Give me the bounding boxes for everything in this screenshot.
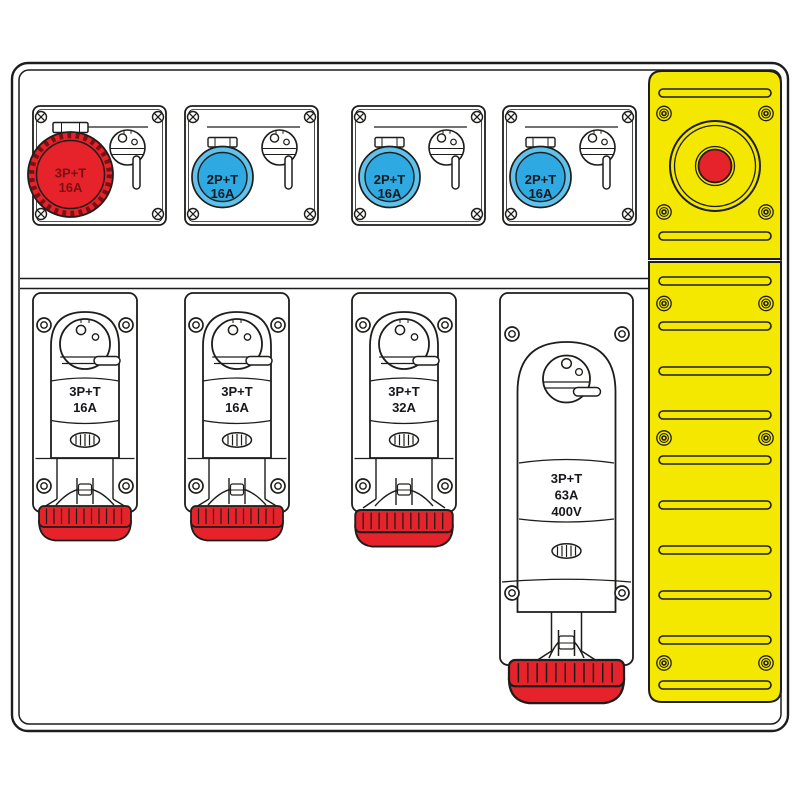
ring-screw-icon (271, 318, 285, 332)
cee-socket-red-16a[interactable]: 3P+T16A (28, 132, 113, 217)
phillips-screw-icon (36, 209, 47, 220)
phillips-screw-icon (355, 112, 366, 123)
socket-cap[interactable] (39, 506, 131, 541)
socket-lid-hinge (208, 138, 237, 148)
phillips-screw-icon (472, 209, 483, 220)
phillips-screw-icon (355, 209, 366, 220)
socket-label: 2P+T16A (207, 172, 238, 201)
phillips-screw-icon (506, 209, 517, 220)
socket-cap[interactable] (509, 660, 624, 703)
emergency-stop-button[interactable] (670, 121, 760, 211)
vent-grille-icon (223, 433, 252, 447)
ring-screw-icon (505, 327, 519, 341)
ring-screw-icon (438, 479, 452, 493)
phillips-screw-icon (506, 112, 517, 123)
socket-unit-bottom-1: 3P+T16A (33, 293, 137, 541)
socket-unit-bottom-4: 3P+T63A400V (500, 293, 633, 703)
ring-screw-icon (37, 318, 51, 332)
ring-screw-icon (37, 479, 51, 493)
socket-unit-top-4: 2P+T16A (503, 106, 636, 225)
phillips-screw-icon (623, 112, 634, 123)
unit-rating-label: 3P+T32A (388, 384, 419, 415)
unit-rating-label: 3P+T63A400V (551, 471, 582, 519)
phillips-screw-icon (188, 209, 199, 220)
vent-grille-icon (71, 433, 100, 447)
socket-unit-top-2: 2P+T16A (185, 106, 318, 225)
socket-label: 2P+T16A (374, 172, 405, 201)
cee-socket-blue-16a[interactable]: 2P+T16A (510, 147, 571, 208)
distribution-board-diagram: 3P+T16A 2P+T16A 2P+T16A (0, 0, 800, 800)
side-panel (649, 71, 781, 702)
ring-screw-icon (189, 479, 203, 493)
ring-screw-icon (271, 479, 285, 493)
phillips-screw-icon (623, 209, 634, 220)
phillips-screw-icon (305, 209, 316, 220)
socket-lid-hinge (375, 138, 404, 148)
cee-socket-blue-16a[interactable]: 2P+T16A (192, 147, 253, 208)
ring-screw-icon (119, 479, 133, 493)
phillips-screw-icon (305, 112, 316, 123)
unit-rating-label: 3P+T16A (69, 384, 100, 415)
ring-screw-icon (615, 586, 629, 600)
socket-lid-hinge (53, 123, 88, 133)
socket-unit-top-3: 2P+T16A (352, 106, 485, 225)
ring-screw-icon (356, 318, 370, 332)
ring-screw-icon (615, 327, 629, 341)
phillips-screw-icon (153, 209, 164, 220)
ring-screw-icon (505, 586, 519, 600)
socket-label: 3P+T16A (55, 166, 86, 196)
ring-screw-icon (438, 318, 452, 332)
socket-unit-bottom-2: 3P+T16A (185, 293, 289, 541)
phillips-screw-icon (472, 112, 483, 123)
enclosure-section-divider (20, 279, 649, 289)
estop-mushroom-cap[interactable] (699, 150, 732, 183)
ring-screw-icon (356, 479, 370, 493)
unit-rating-label: 3P+T16A (221, 384, 252, 415)
socket-unit-top-1: 3P+T16A (28, 106, 166, 225)
socket-lid-hinge (526, 138, 555, 148)
cee-socket-blue-16a[interactable]: 2P+T16A (359, 147, 420, 208)
ring-screw-icon (189, 318, 203, 332)
phillips-screw-icon (36, 112, 47, 123)
socket-unit-bottom-3: 3P+T32A (352, 293, 456, 547)
vent-grille-icon (552, 544, 581, 558)
ring-screw-icon (119, 318, 133, 332)
phillips-screw-icon (153, 112, 164, 123)
socket-label: 2P+T16A (525, 172, 556, 201)
socket-cap[interactable] (191, 506, 283, 541)
phillips-screw-icon (188, 112, 199, 123)
socket-cap[interactable] (355, 510, 453, 547)
vent-grille-icon (390, 433, 419, 447)
